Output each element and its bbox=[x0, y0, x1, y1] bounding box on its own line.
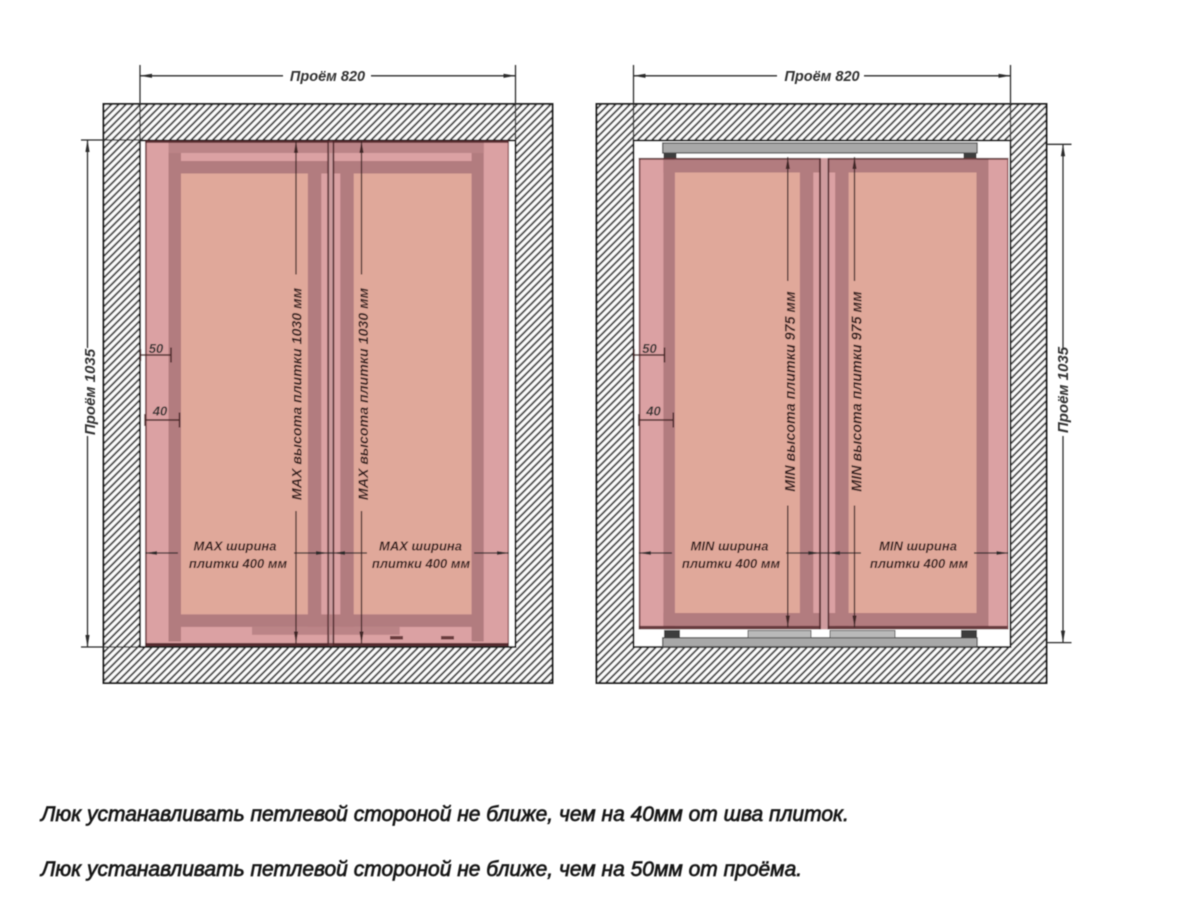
svg-text:MAX высота плитки 1030 мм: MAX высота плитки 1030 мм bbox=[290, 287, 306, 500]
svg-text:Проём 1035: Проём 1035 bbox=[1055, 346, 1072, 433]
svg-text:MIN высота плитки 975 мм: MIN высота плитки 975 мм bbox=[850, 291, 866, 492]
svg-text:MIN ширина: MIN ширина bbox=[879, 539, 957, 554]
svg-text:Проём 1035: Проём 1035 bbox=[82, 348, 99, 435]
svg-text:50: 50 bbox=[642, 341, 657, 356]
svg-text:MIN ширина: MIN ширина bbox=[691, 539, 769, 554]
svg-text:MIN высота плитки 975 мм: MIN высота плитки 975 мм bbox=[783, 291, 799, 492]
svg-text:40: 40 bbox=[645, 404, 661, 419]
svg-text:плитки 400 мм: плитки 400 мм bbox=[870, 556, 969, 571]
svg-text:MAX ширина: MAX ширина bbox=[194, 539, 277, 554]
svg-text:MAX высота плитки 1030 мм: MAX высота плитки 1030 мм bbox=[356, 287, 372, 500]
svg-text:Проём 820: Проём 820 bbox=[784, 69, 859, 85]
svg-text:40: 40 bbox=[152, 404, 168, 419]
svg-text:MAX ширина: MAX ширина bbox=[379, 539, 462, 554]
svg-text:50: 50 bbox=[149, 341, 164, 356]
svg-text:плитки 400 мм: плитки 400 мм bbox=[372, 556, 471, 571]
svg-text:плитки 400 мм: плитки 400 мм bbox=[682, 556, 781, 571]
svg-text:Проём 820: Проём 820 bbox=[290, 69, 365, 85]
svg-text:Люк устанавливать петлевой сто: Люк устанавливать петлевой стороной не б… bbox=[39, 803, 849, 826]
svg-text:Люк устанавливать петлевой сто: Люк устанавливать петлевой стороной не б… bbox=[39, 858, 802, 881]
svg-text:плитки 400 мм: плитки 400 мм bbox=[189, 556, 288, 571]
